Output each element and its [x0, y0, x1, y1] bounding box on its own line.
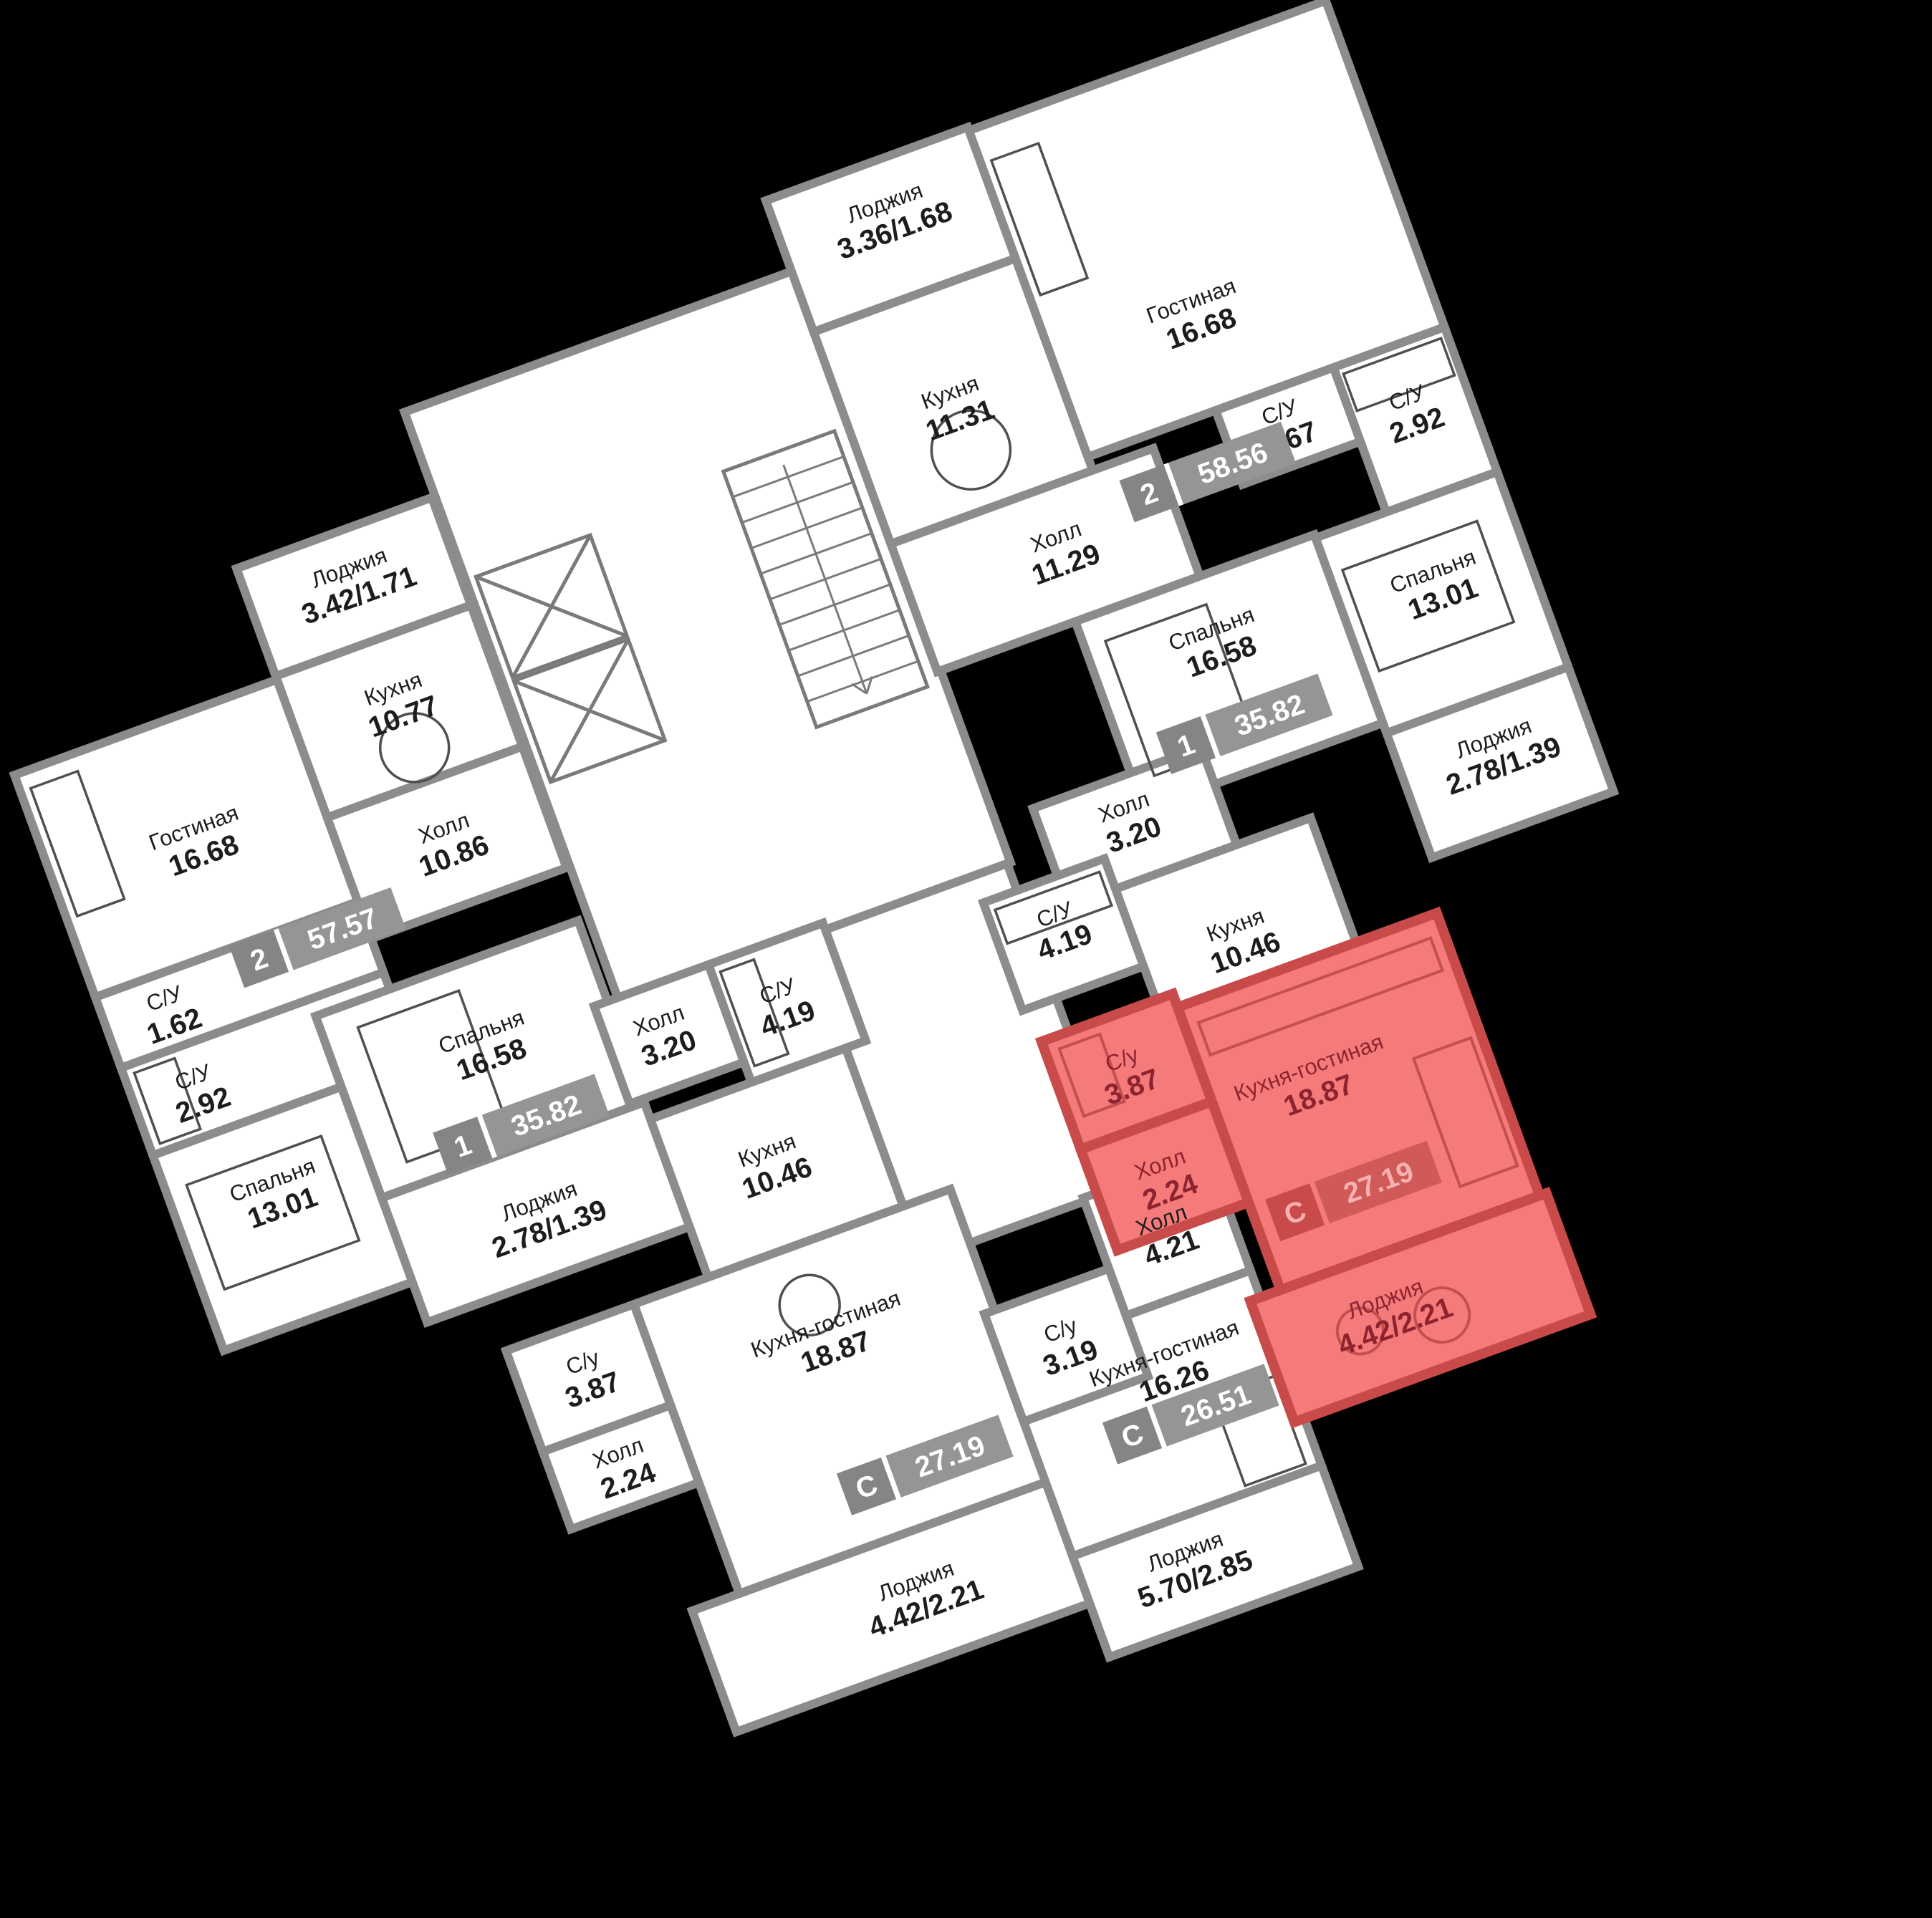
floor-plan-image: Лоджия3.36/1.68Кухня11.31Гостиная16.68Хо… [0, 0, 1932, 1918]
floor-plan-page: Лоджия3.36/1.68Кухня11.31Гостиная16.68Хо… [0, 0, 1932, 1918]
